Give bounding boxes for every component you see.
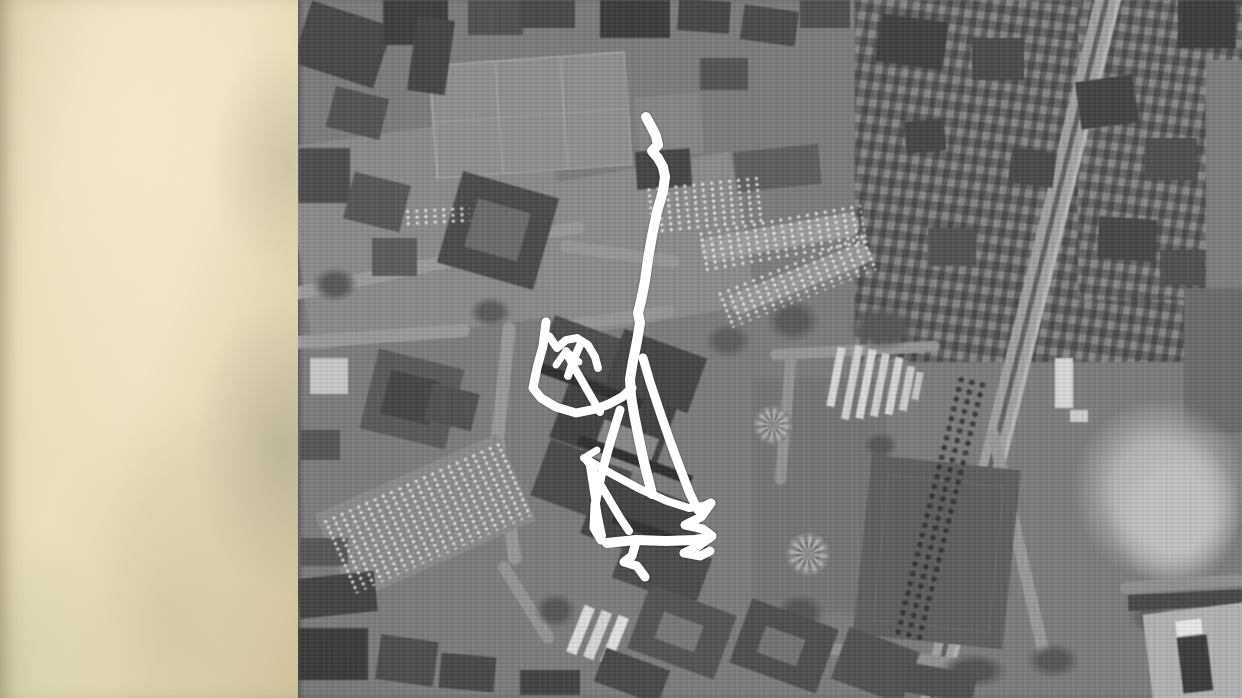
tree-cluster <box>463 292 518 332</box>
building <box>520 670 580 695</box>
building <box>677 0 731 34</box>
building <box>326 86 390 140</box>
building <box>904 118 947 153</box>
building <box>1075 74 1139 130</box>
building <box>375 634 439 687</box>
tree-cluster <box>858 428 903 463</box>
tree-cluster <box>838 298 928 358</box>
building <box>1097 216 1158 262</box>
tree-cluster <box>1018 638 1088 683</box>
building <box>468 0 523 35</box>
park-roundabout-north <box>754 406 792 444</box>
building <box>298 628 368 680</box>
building <box>298 148 350 203</box>
building <box>875 14 949 71</box>
building <box>600 0 670 38</box>
building <box>1160 250 1205 285</box>
building <box>300 430 340 460</box>
building <box>372 238 417 276</box>
building <box>700 58 748 90</box>
building <box>298 0 393 88</box>
tree-cluster <box>305 262 365 307</box>
building <box>1008 147 1057 188</box>
building <box>1145 138 1197 180</box>
screenshot-root <box>0 0 1242 698</box>
court-small <box>635 93 704 157</box>
building <box>800 0 850 28</box>
terrain-grove-right-edge <box>1206 60 1242 290</box>
map-features-layer <box>298 0 1242 698</box>
white-building-roadside <box>1070 410 1088 422</box>
white-building-roadside <box>1055 358 1073 408</box>
sports-courts <box>428 51 632 178</box>
satellite-map <box>298 0 1242 698</box>
tree-cluster <box>698 318 758 363</box>
southeast-building-roof <box>1175 618 1203 636</box>
park-roundabout-south <box>787 533 829 575</box>
building-bright <box>310 358 348 394</box>
parking-cars-small <box>405 206 471 225</box>
building <box>1178 0 1236 48</box>
building <box>740 4 799 46</box>
building <box>439 653 497 693</box>
blurred-left-panel <box>0 0 298 698</box>
building <box>520 0 575 28</box>
building <box>928 228 976 266</box>
hospital-road-north <box>491 322 516 443</box>
building <box>972 38 1024 80</box>
